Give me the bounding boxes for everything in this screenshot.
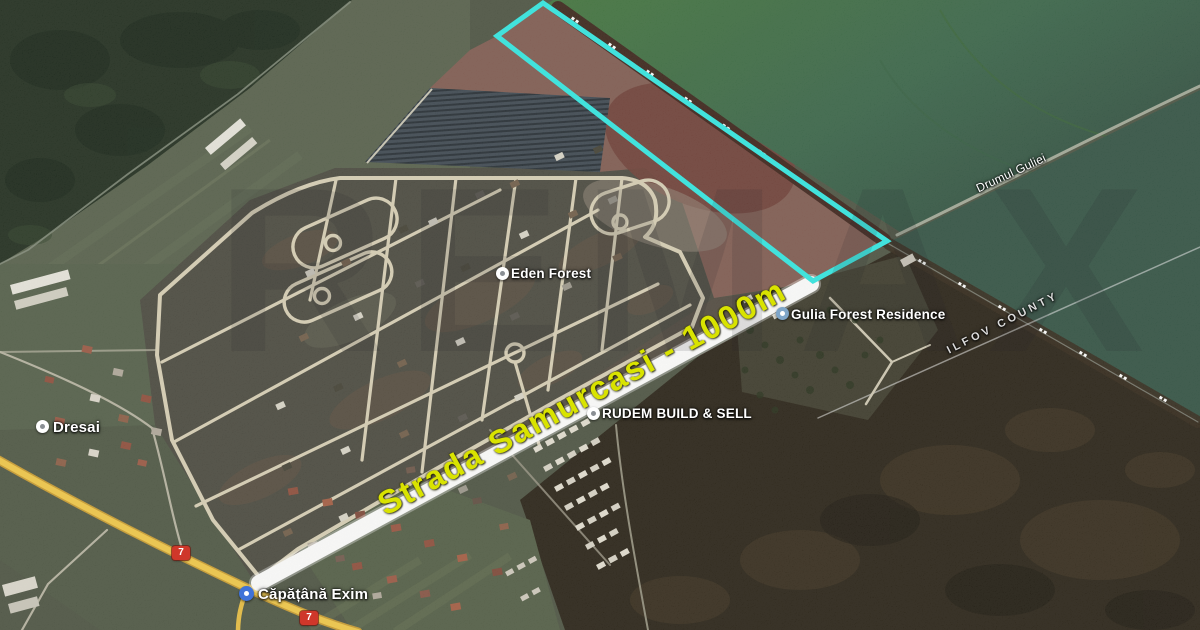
gulia-forest-label[interactable]: Gulia Forest Residence — [791, 307, 945, 322]
capatana-marker-icon[interactable] — [239, 586, 254, 601]
rudem-label[interactable]: RUDEM BUILD & SELL — [602, 406, 752, 421]
eden-forest-marker-icon[interactable] — [496, 267, 509, 280]
eden-forest-label[interactable]: Eden Forest — [511, 266, 591, 281]
dresai-label[interactable]: Dresai — [53, 419, 100, 436]
capatana-label[interactable]: Căpățână Exim — [258, 586, 368, 603]
route-7-badge-north[interactable]: 7 — [172, 546, 190, 560]
satellite-map-canvas[interactable]: REMAX Eden Forest Gulia Forest Residence… — [0, 0, 1200, 630]
dresai-marker-icon[interactable] — [36, 420, 49, 433]
route-7-badge-south[interactable]: 7 — [300, 611, 318, 625]
